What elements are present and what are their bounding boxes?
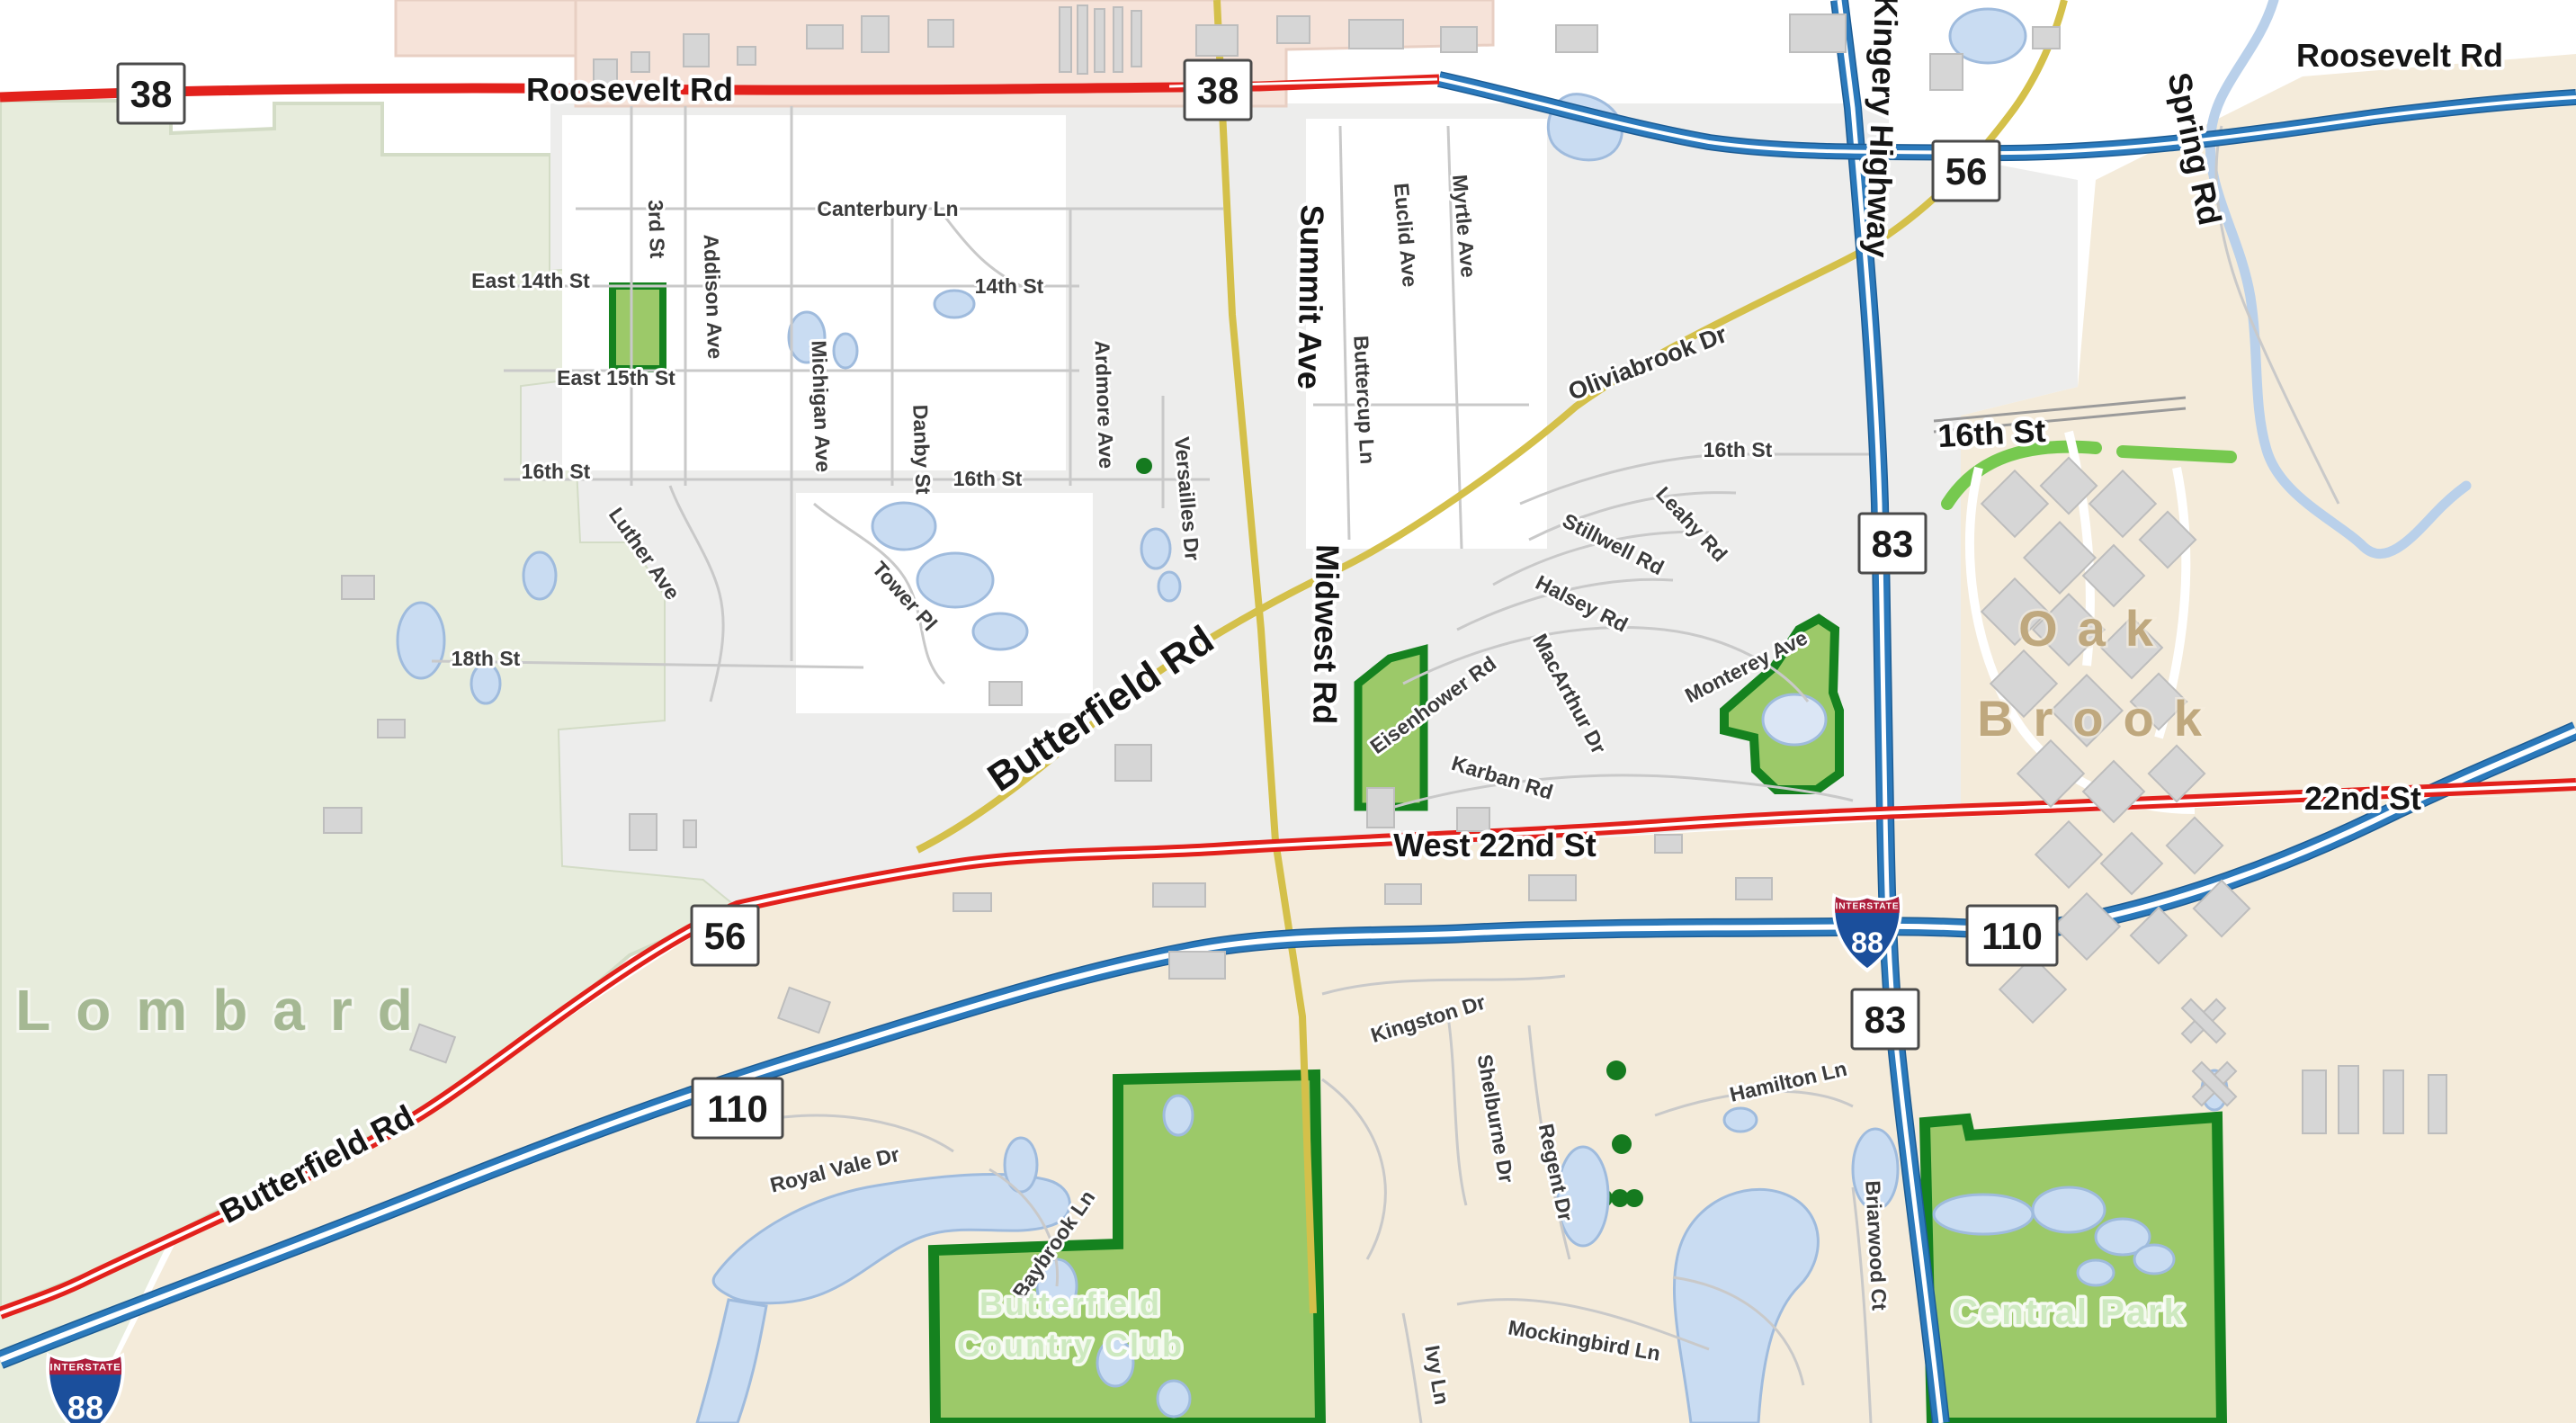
svg-text:83: 83	[1865, 998, 1907, 1041]
svg-text:56: 56	[1945, 150, 1988, 192]
street-label-east-15th: East 15th St	[557, 366, 675, 389]
road-label-16th-bold: 16th St	[1936, 412, 2046, 454]
street-label-16th-e: 16th St	[1704, 438, 1773, 461]
area-label-butterfield-cc-line1: Butterfield	[979, 1285, 1161, 1322]
place-label-oak-brook-line1: Oak	[2018, 600, 2173, 657]
svg-text:83: 83	[1872, 523, 1914, 565]
street-label-18th: 18th St	[452, 647, 521, 670]
shield-il-38-b: 38	[1185, 60, 1251, 120]
road-label-roosevelt-w: Roosevelt Rd	[526, 71, 733, 108]
area-label-butterfield-cc-line2: Country Club	[957, 1327, 1184, 1364]
street-label-16th-w: 16th St	[522, 460, 591, 483]
shield-il-83-b: 83	[1852, 989, 1919, 1049]
road-label-west-22nd: West 22nd St	[1393, 827, 1596, 864]
area-label-central-park: Central Park	[1952, 1293, 2186, 1332]
svg-text:38: 38	[1197, 69, 1239, 112]
map-canvas[interactable]: Canterbury Ln East 14th St 3rd St Addiso…	[0, 0, 2576, 1423]
street-label-16th-mid: 16th St	[953, 467, 1023, 490]
shield-il-56-b: 56	[692, 906, 758, 965]
street-label-michigan: Michigan Ave	[807, 340, 835, 472]
shield-il-110-b: 110	[693, 1078, 783, 1138]
svg-text:88: 88	[67, 1390, 103, 1423]
place-label-lombard: Lombard	[15, 978, 438, 1043]
svg-text:110: 110	[707, 1087, 768, 1130]
shield-il-56-a: 56	[1933, 141, 1999, 201]
svg-text:88: 88	[1851, 926, 1883, 959]
road-label-22nd: 22nd St	[2304, 780, 2421, 817]
road-label-midwest: Midwest Rd	[1306, 544, 1346, 725]
shield-il-110-a: 110	[1967, 906, 2057, 965]
street-label-3rd: 3rd St	[644, 200, 669, 259]
svg-text:110: 110	[1981, 915, 2043, 957]
street-label-ardmore: Ardmore Ave	[1091, 340, 1119, 470]
street-label-14th: 14th St	[975, 274, 1044, 298]
shield-il-38-a: 38	[118, 64, 184, 123]
place-label-oak-brook-line2: Brook	[1977, 690, 2222, 747]
street-label-canterbury: Canterbury Ln	[817, 197, 958, 220]
road-label-roosevelt-e: Roosevelt Rd	[2296, 37, 2503, 74]
street-label-addison: Addison Ave	[700, 234, 728, 360]
street-label-east-14th: East 14th St	[471, 269, 590, 292]
street-label-danby: Danby St	[908, 404, 935, 495]
svg-text:INTERSTATE: INTERSTATE	[49, 1363, 121, 1374]
shield-il-83-a: 83	[1859, 514, 1926, 573]
svg-text:56: 56	[704, 915, 747, 957]
svg-text:38: 38	[130, 73, 173, 115]
svg-text:INTERSTATE: INTERSTATE	[1836, 902, 1900, 912]
road-label-summit: Summit Ave	[1291, 204, 1331, 389]
